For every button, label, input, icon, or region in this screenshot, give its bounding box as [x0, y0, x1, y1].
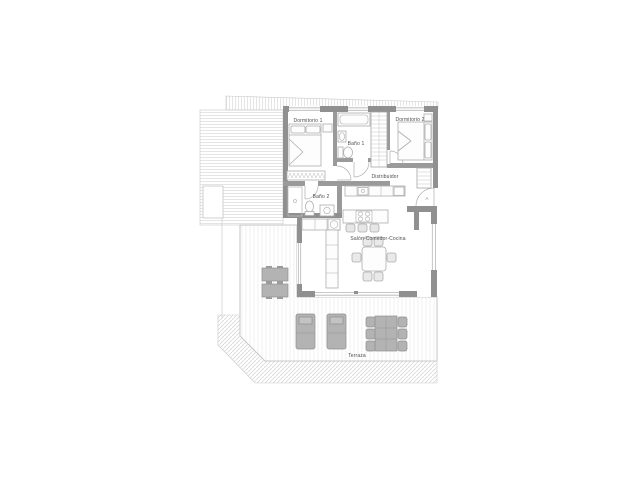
pillow: [425, 142, 431, 158]
floorplan-drawing: Dormitorio 1 Baño 1 Dormitorio 2 Distrib…: [0, 0, 640, 480]
terrace-chair: [366, 341, 375, 351]
roof-notch: [203, 186, 223, 218]
ac-unit: [262, 284, 288, 297]
lounger-pillow: [299, 317, 312, 324]
wall-bano1-bottom: [368, 158, 371, 162]
pillow: [306, 126, 320, 133]
dining-chair: [363, 272, 372, 281]
wall-top: [424, 106, 438, 112]
kitchen-island: [343, 210, 388, 223]
wall-left: [283, 112, 288, 218]
fridge: [394, 187, 404, 196]
room-label-terraza: Terraza: [348, 353, 366, 359]
wall-right-upper: [433, 112, 438, 188]
pillow: [291, 126, 305, 133]
terrace-chair: [366, 329, 375, 339]
closet-entry: [417, 168, 431, 188]
dining-chair: [374, 272, 383, 281]
room-label-dormitorio1: Dormitorio 1: [293, 118, 322, 124]
room-label-bano2: Baño 2: [313, 194, 330, 200]
toilet-bowl: [344, 147, 353, 158]
nightstand: [424, 114, 432, 121]
wall-entry-partition: [414, 212, 419, 230]
wall-dormitorio1-right: [333, 112, 337, 166]
entrance-door-label: A: [425, 196, 428, 201]
wall-livingroom-right: [431, 270, 437, 297]
pillow: [425, 124, 431, 140]
terrace-chair: [366, 317, 375, 327]
terrace-chair: [398, 317, 407, 327]
wall-dormitorio2-left: [387, 112, 390, 150]
room-label-bano1: Baño 1: [348, 141, 365, 147]
closet-shelved: [371, 112, 387, 167]
room-label-distribuidor: Distribuidor: [371, 174, 398, 180]
wall-dormitorio2-bottom: [390, 163, 433, 168]
dining-chair: [387, 253, 396, 262]
wall-bano1-bottom: [337, 158, 353, 162]
wall-top: [320, 106, 348, 112]
wall-kitchen-top: [342, 181, 390, 186]
wall-bano2-top: [283, 181, 305, 186]
wall-bano2-right: [337, 186, 342, 213]
bar-stool: [358, 224, 367, 232]
bar-stool: [370, 224, 379, 232]
room-label-dormitorio2: Dormitorio 2: [395, 117, 424, 123]
floorplan-page: Dormitorio 1 Baño 1 Dormitorio 2 Distrib…: [0, 0, 640, 480]
dining-chair: [352, 253, 361, 262]
toilet-tank: [305, 212, 314, 216]
wall-livingroom-bottom: [297, 291, 315, 297]
toilet-bowl: [306, 201, 314, 212]
washbasin-counter: [320, 205, 334, 216]
sliding-door-handle: [354, 291, 358, 294]
wall-livingroom-bottom: [399, 291, 417, 297]
toilet-tank: [338, 147, 343, 158]
wall-top: [368, 106, 396, 112]
wall-entry-south: [407, 206, 437, 212]
nightstand: [323, 124, 332, 132]
terrace-chair: [398, 341, 407, 351]
dining-table: [362, 247, 386, 271]
terrace-chair: [398, 329, 407, 339]
ac-unit: [262, 268, 288, 281]
oven: [358, 188, 368, 196]
room-label-salon: Salón-Comedor-Cocina: [350, 236, 405, 242]
wall-dormitorio2-left: [387, 164, 390, 168]
wall-top: [283, 106, 289, 112]
bar-stool: [346, 224, 355, 232]
wall-livingroom-right: [431, 212, 437, 224]
wall-bano2-top: [318, 181, 342, 186]
lounger-pillow: [330, 317, 343, 324]
wall-livingroom-left: [297, 218, 302, 243]
